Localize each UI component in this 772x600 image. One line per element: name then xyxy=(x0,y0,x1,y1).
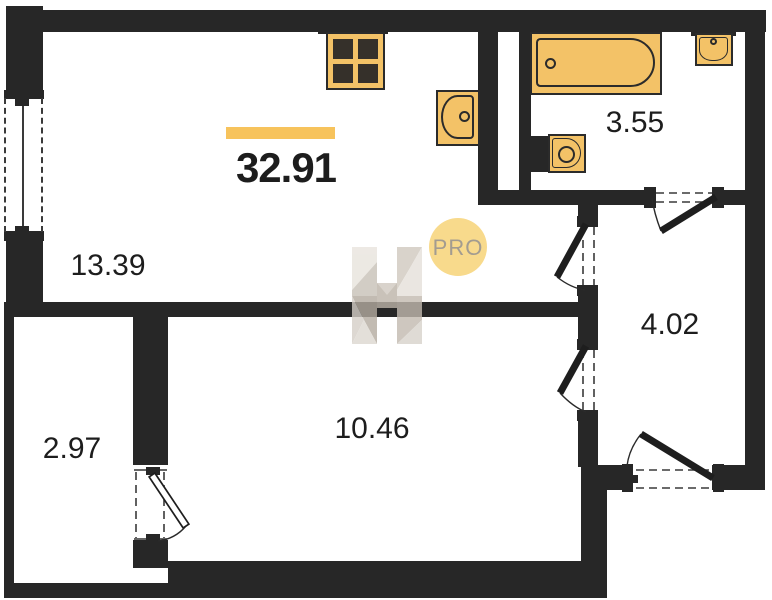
entry-door xyxy=(622,434,724,492)
total-area-value: 32.91 xyxy=(219,147,353,189)
watermark-pro-text: PRO xyxy=(433,235,484,260)
room-area-hallway: 4.02 xyxy=(632,310,708,340)
room-area-balcony: 2.97 xyxy=(32,434,112,464)
total-area-bar xyxy=(226,127,335,139)
living-hall-door xyxy=(557,216,598,296)
bathroom-door xyxy=(644,187,724,231)
room-area-living: 13.39 xyxy=(66,251,150,281)
room-area-bathroom: 3.55 xyxy=(597,108,673,138)
watermark-h-logo xyxy=(352,247,422,344)
hall-bedroom-door xyxy=(560,339,598,421)
floorplan-canvas: PRO 32.91 13.39 3.55 4.02 10.46 2.97 xyxy=(0,0,772,600)
doors-overlay: PRO xyxy=(0,0,772,600)
room-area-bedroom: 10.46 xyxy=(327,414,417,444)
watermark-pro-badge: PRO xyxy=(429,218,487,276)
balcony-door xyxy=(134,467,189,542)
